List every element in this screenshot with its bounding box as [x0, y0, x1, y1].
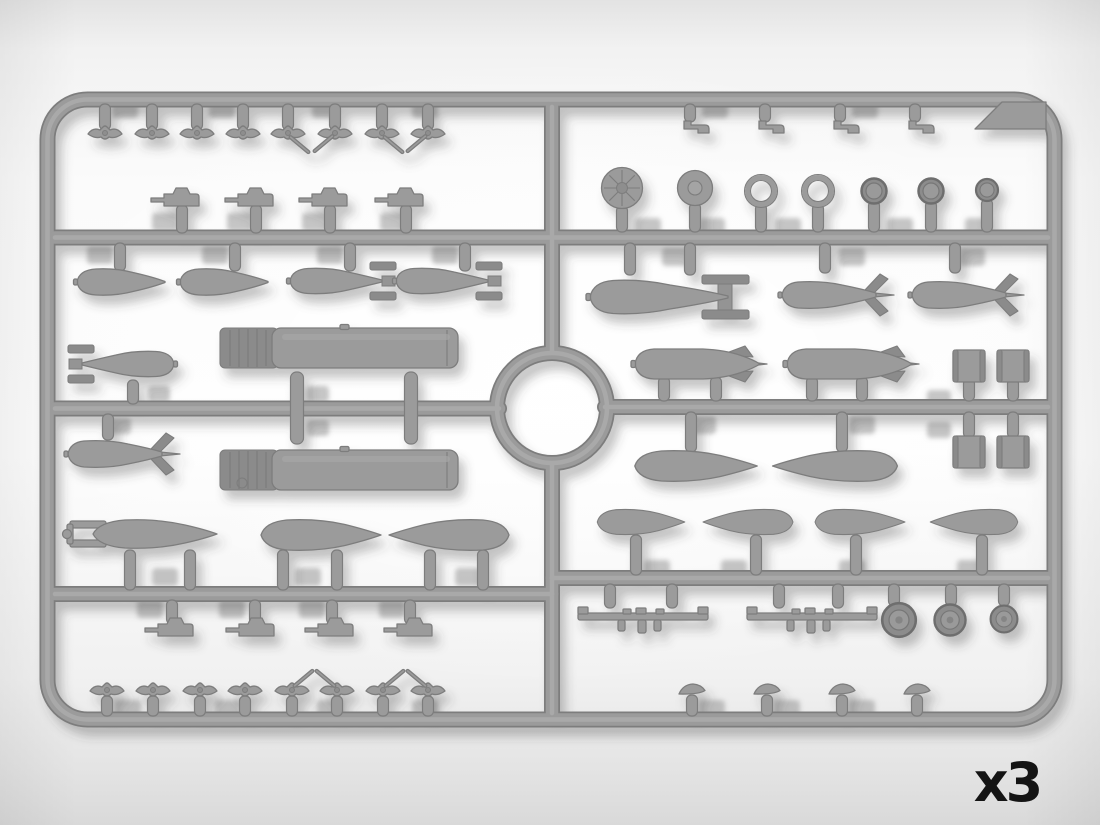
part-gunpods-lower: [226, 618, 274, 636]
gate-stubs: [125, 550, 136, 590]
mold-shadow-tabs: [307, 386, 329, 402]
gate-stubs: [690, 203, 701, 232]
part-fuze-row-bottom: [320, 683, 354, 696]
part-crucifin-bombs-right: [778, 274, 894, 316]
part-fuze-row-top: [226, 126, 260, 139]
part-brackets-top-right: [909, 121, 934, 133]
gate-stubs: [332, 550, 343, 590]
part-brackets-top-right: [759, 121, 784, 133]
part-gunpods-lower: [145, 618, 193, 636]
part-gunpods-lower: [384, 618, 432, 636]
part-wheels: [991, 606, 1018, 633]
mold-shadow-tabs: [307, 420, 329, 436]
part-brackets-top-right: [684, 121, 709, 133]
part-pod-lower: [220, 447, 458, 491]
gate-stubs: [195, 696, 206, 716]
part-fuze-row-bottom: [293, 669, 315, 688]
mold-shadow-tabs: [379, 600, 405, 618]
part-fuze-row-bottom: [183, 683, 217, 696]
gate-stubs: [837, 412, 848, 452]
gate-stubs: [912, 695, 923, 716]
gate-stubs: [685, 243, 696, 275]
part-fuze-row-top: [180, 126, 214, 139]
gate-stubs: [756, 204, 767, 232]
gate-stubs: [950, 243, 961, 273]
gate-stubs: [964, 412, 975, 438]
mold-shadow-tabs: [219, 600, 245, 618]
part-fuze-row-top: [289, 135, 311, 154]
gate-stubs: [425, 550, 436, 590]
part-drums-lower: [953, 436, 985, 468]
mold-shadow-tabs: [87, 246, 113, 264]
mold-shadow-tabs: [137, 600, 163, 618]
gate-stubs: [148, 696, 159, 716]
part-fuze-row-bottom: [90, 683, 124, 696]
part-fuze-row-top: [411, 126, 445, 139]
gate-stubs: [345, 243, 356, 271]
gate-stubs: [869, 201, 880, 232]
part-fuze-row-top: [88, 126, 445, 154]
part-bombs-left-row: [74, 269, 166, 295]
part-gunpods-upper: [151, 188, 423, 206]
part-fuze-row-bottom: [90, 669, 445, 696]
part-rings: [745, 175, 835, 208]
mold-shadow-tabs: [152, 568, 178, 586]
mold-shadow-tabs: [148, 386, 170, 402]
part-spinner-disc: [602, 168, 643, 209]
part-boxfin-bomb-left: [68, 345, 178, 383]
gate-stubs: [807, 377, 818, 401]
gate-stubs: [325, 205, 336, 233]
part-fuze-row-bottom: [384, 669, 406, 688]
part-bomb-halves-right: [930, 509, 1018, 534]
gate-stubs: [837, 695, 848, 716]
part-brackets-top-right: [684, 121, 934, 133]
gate-stubs: [813, 204, 824, 232]
part-crucifin-bombs-right: [908, 274, 1024, 316]
part-gunpods-lower: [145, 618, 432, 636]
part-fuze-row-top: [271, 126, 305, 139]
part-gunpods-upper: [225, 188, 273, 206]
part-bomb-halves-right: [597, 509, 685, 534]
gate-stubs: [659, 377, 670, 401]
gate-stubs: [835, 104, 846, 122]
gate-stubs: [686, 412, 697, 452]
part-bomb-racks: [578, 607, 877, 633]
part-fairings: [679, 684, 930, 694]
part-hub-disc: [678, 171, 713, 206]
part-torpedo: [63, 520, 218, 549]
mold-shadow-tabs: [227, 213, 253, 231]
part-tank-halves-left: [389, 520, 509, 551]
mold-shadow-tabs: [295, 568, 321, 586]
gate-stubs: [631, 535, 642, 575]
part-spinner-disc: [602, 168, 643, 209]
gate-stubs: [115, 243, 126, 271]
part-fuze-row-top: [318, 126, 352, 139]
part-large-boxfin-bomb: [586, 275, 749, 319]
part-fairings: [829, 684, 855, 694]
gate-stubs: [287, 696, 298, 716]
part-wheels: [882, 603, 1017, 637]
gate-stubs: [185, 550, 196, 590]
gate-stubs: [291, 372, 304, 444]
gate-stubs: [405, 372, 418, 444]
mold-shadow-tabs: [959, 248, 985, 266]
part-bombs-left-row: [287, 262, 397, 300]
part-bomb-halves-right: [597, 509, 1018, 534]
gate-stubs: [230, 243, 241, 271]
gate-stubs: [926, 201, 937, 232]
part-large-boxfin-bomb: [586, 275, 749, 319]
part-pod-upper: [220, 325, 458, 369]
gate-stubs: [378, 696, 389, 716]
sprue-runner: [48, 100, 1055, 720]
part-crucifin-bomb-left: [64, 433, 180, 475]
part-bomb-halves-right: [703, 509, 793, 534]
part-tank-halves-left: [261, 520, 509, 551]
mold-shadow-tabs: [839, 248, 865, 266]
gate-stubs: [103, 414, 114, 440]
part-fuze-row-bottom: [275, 683, 309, 696]
part-fat-bombs: [631, 346, 767, 382]
part-fat-bombs: [631, 346, 919, 382]
gate-stubs: [751, 535, 762, 575]
product-render-stage: x3: [0, 0, 1100, 825]
part-crucifin-bomb-left: [64, 433, 180, 475]
gate-stubs: [240, 696, 251, 716]
part-small-discs: [862, 179, 887, 204]
gate-stubs: [946, 584, 957, 606]
part-fuze-row-top: [365, 126, 399, 139]
gate-stubs: [687, 695, 698, 716]
part-wheels: [934, 604, 965, 635]
part-fat-bombs: [783, 346, 919, 382]
part-rings: [745, 175, 778, 208]
part-bombs-left-row: [177, 269, 269, 295]
gate-stubs: [762, 695, 773, 716]
part-rings: [802, 175, 835, 208]
mold-shadow-tabs: [317, 246, 343, 264]
mold-shadow-tabs: [849, 416, 875, 434]
mold-shadow-tabs: [152, 213, 178, 231]
gate-stubs: [278, 550, 289, 590]
part-bomb-racks: [747, 607, 877, 633]
part-drums-lower: [953, 436, 1029, 468]
part-tank-halves-right: [773, 451, 898, 482]
part-tank-halves-right: [635, 451, 757, 482]
gate-stubs: [617, 206, 628, 232]
part-tank-halves-right: [635, 451, 898, 482]
part-fuze-row-bottom: [228, 683, 262, 696]
part-bomb-halves-right: [815, 509, 905, 534]
part-hub-disc: [678, 171, 713, 206]
part-bombs-left-row: [74, 262, 503, 300]
gate-stubs: [851, 535, 862, 575]
gate-stubs: [667, 584, 678, 608]
part-bomb-racks: [578, 607, 708, 633]
gate-stubs: [251, 205, 262, 233]
gate-stubs: [711, 377, 722, 401]
part-small-discs: [919, 179, 944, 204]
part-drums-lower: [997, 436, 1029, 468]
gate-stubs: [760, 104, 771, 122]
part-small-discs: [976, 179, 998, 201]
gate-stubs: [102, 696, 113, 716]
gate-stubs: [460, 243, 471, 271]
part-fuze-row-bottom: [406, 669, 428, 688]
part-gunpods-upper: [375, 188, 423, 206]
part-fuze-row-top: [135, 126, 169, 139]
part-gunpods-lower: [305, 618, 353, 636]
part-drums-upper: [953, 350, 1029, 382]
gate-stubs: [625, 243, 636, 275]
gate-stubs: [910, 104, 921, 122]
gate-stubs: [128, 380, 139, 404]
part-pod-upper: [220, 325, 458, 369]
gate-stubs: [478, 550, 489, 590]
gate-stubs: [833, 584, 844, 608]
part-torpedo: [63, 520, 218, 549]
gate-stubs: [999, 584, 1010, 606]
mold-shadow-tabs: [299, 600, 325, 618]
part-fuze-row-top: [383, 135, 405, 154]
part-fuze-row-top: [88, 126, 122, 139]
part-boxfin-bomb-left: [68, 345, 178, 383]
mold-shadow-tabs: [432, 246, 458, 264]
gate-stubs: [685, 104, 696, 122]
part-fairings: [754, 684, 780, 694]
gate-stubs: [857, 377, 868, 401]
part-gunpods-upper: [299, 188, 347, 206]
part-small-discs: [862, 179, 999, 204]
gate-stubs: [977, 535, 988, 575]
gate-stubs: [774, 584, 785, 608]
part-drums-upper: [953, 350, 985, 382]
part-pod-lower: [220, 447, 458, 491]
quantity-label: x3: [974, 751, 1040, 814]
part-drums-upper: [997, 350, 1029, 382]
part-fairings: [904, 684, 930, 694]
gate-stubs: [332, 696, 343, 716]
mold-shadow-tabs: [202, 246, 228, 264]
gate-stubs: [401, 205, 412, 233]
part-bombs-left-row: [393, 262, 503, 300]
part-fairings: [679, 684, 705, 694]
gate-stubs: [423, 696, 434, 716]
part-wheels: [882, 603, 916, 637]
part-fuze-row-bottom: [136, 683, 170, 696]
part-fuze-row-bottom: [315, 669, 337, 688]
gate-stubs: [982, 199, 993, 232]
gate-stubs: [1008, 412, 1019, 438]
gate-stubs: [605, 584, 616, 608]
part-brackets-top-right: [834, 121, 859, 133]
gate-stubs: [820, 243, 831, 273]
mold-shadow-tabs: [927, 422, 951, 438]
part-gunpods-upper: [151, 188, 199, 206]
part-crucifin-bombs-right: [778, 274, 1024, 316]
gate-stubs: [177, 205, 188, 233]
sprue-scene: x3: [0, 0, 1100, 825]
part-fuze-row-bottom: [366, 683, 400, 696]
part-tank-halves-left: [261, 520, 381, 551]
part-fuze-row-bottom: [411, 683, 445, 696]
